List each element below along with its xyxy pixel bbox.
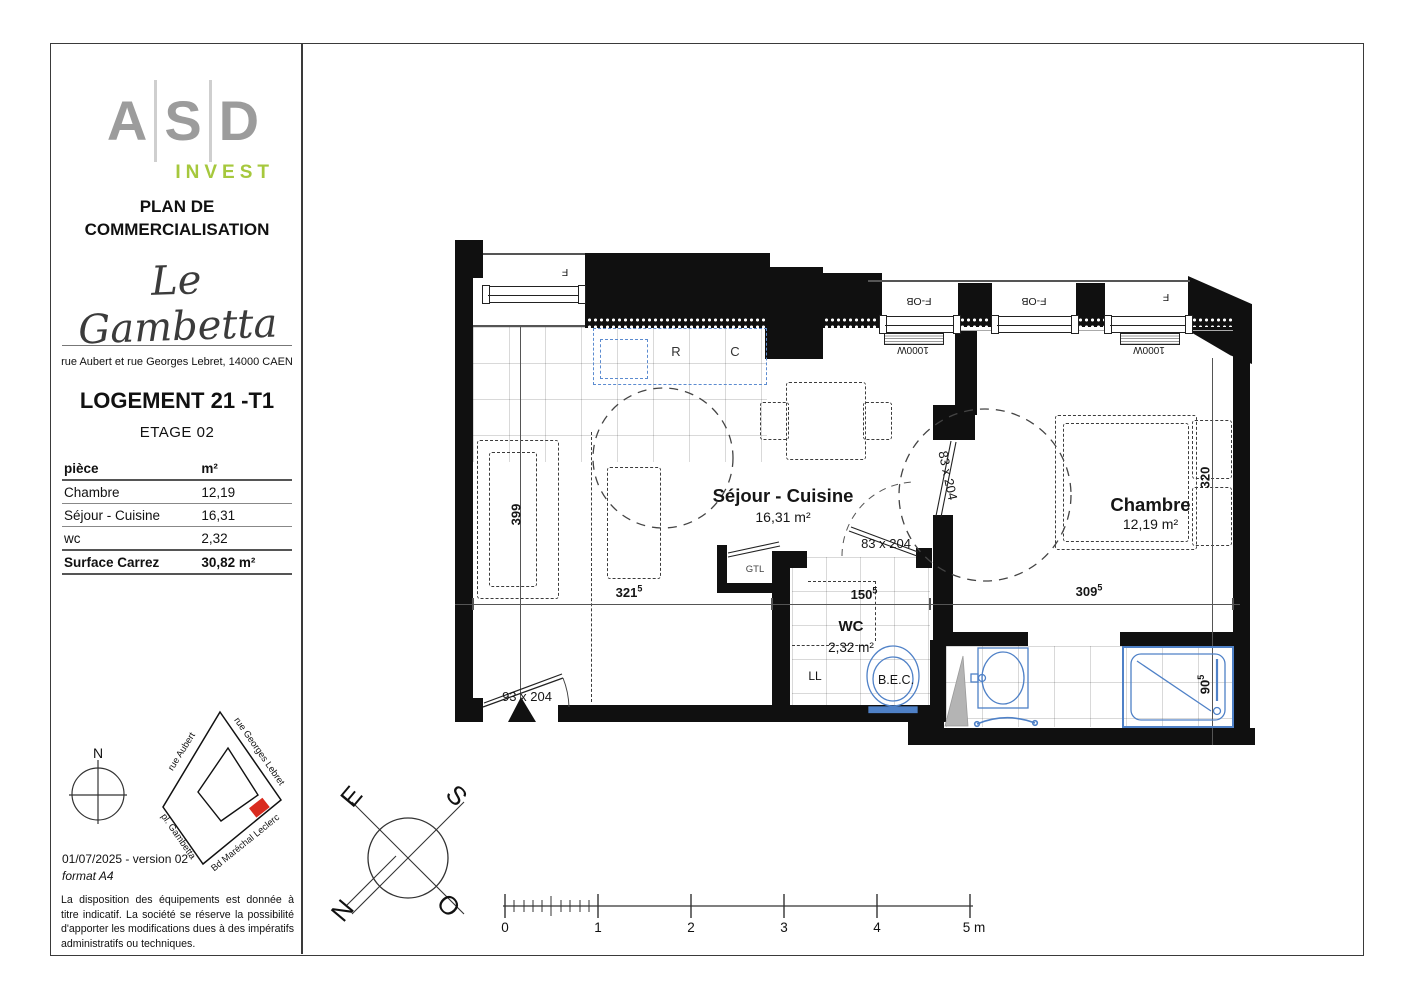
total-area: 30,82 m² bbox=[201, 555, 290, 570]
compass-north-double-line bbox=[347, 856, 396, 905]
washer-label: LL bbox=[800, 669, 830, 683]
map-inner-block bbox=[198, 748, 258, 821]
compass-e: E bbox=[334, 780, 368, 813]
logo-bar bbox=[154, 80, 157, 162]
table-row: wc 2,32 bbox=[62, 527, 292, 551]
street-aubert: rue Aubert bbox=[166, 730, 197, 772]
table-total-row: Surface Carrez 30,82 m² bbox=[62, 551, 292, 575]
window-label-f1: F bbox=[550, 266, 580, 278]
compass-n: N bbox=[325, 894, 360, 928]
row-piece: Séjour - Cuisine bbox=[64, 508, 201, 523]
floor-label: ETAGE 02 bbox=[58, 424, 296, 441]
unit-title: LOGEMENT 21 -T1 bbox=[58, 388, 296, 414]
scale-4: 4 bbox=[873, 920, 881, 935]
table-header: pièce m² bbox=[62, 457, 292, 481]
wc-door-label: 83 x 204 bbox=[851, 536, 921, 551]
fridge-letter: R bbox=[666, 344, 686, 359]
entrance-door-label: 93 x 204 bbox=[492, 689, 562, 704]
window-label-f2: F bbox=[1136, 291, 1196, 303]
logo-letter-d: D bbox=[219, 93, 259, 149]
dim-309: 3095 bbox=[1054, 584, 1124, 599]
window-label-fob1: F-OB bbox=[889, 295, 949, 307]
residence-name: Le Gambetta bbox=[59, 254, 294, 354]
scale-3: 3 bbox=[780, 920, 788, 935]
compass-and-scale: E S N O 0 1 2 3 4 5 m bbox=[310, 782, 1010, 947]
scale-1: 1 bbox=[594, 920, 602, 935]
logo-invest-label: INVEST bbox=[88, 162, 278, 184]
row-area: 2,32 bbox=[201, 531, 290, 546]
col-area: m² bbox=[201, 461, 290, 476]
shaft-triangle bbox=[945, 656, 968, 726]
unit-location-marker bbox=[249, 798, 270, 818]
street-lebret: rue Georges Lebret bbox=[232, 715, 287, 787]
radiator-label: 1000W bbox=[883, 344, 943, 355]
address: rue Aubert et rue Georges Lebret, 14000 … bbox=[58, 356, 296, 368]
scale-2: 2 bbox=[687, 920, 695, 935]
dim-150: 1505 bbox=[829, 587, 899, 602]
gtl-door-leaf bbox=[728, 542, 780, 557]
dim-321: 3215 bbox=[594, 585, 664, 600]
paper-format: format A4 bbox=[62, 869, 114, 883]
table-row: Chambre 12,19 bbox=[62, 481, 292, 504]
dim-90: 905 bbox=[1198, 665, 1213, 705]
row-piece: Chambre bbox=[64, 485, 201, 500]
sejour-name: Séjour - Cuisine bbox=[658, 485, 908, 507]
row-area: 16,31 bbox=[201, 508, 290, 523]
shower-tray bbox=[1123, 647, 1233, 727]
version-date: 01/07/2025 - version 02 bbox=[62, 852, 188, 866]
bathroom-sink bbox=[971, 648, 1028, 708]
north-letter: N bbox=[93, 745, 103, 761]
compass-o: O bbox=[431, 888, 467, 923]
dim-320: 320 bbox=[1198, 458, 1213, 498]
row-piece: wc bbox=[64, 531, 201, 546]
sidebar-rule bbox=[62, 345, 292, 346]
sejour-area: 16,31 m² bbox=[658, 509, 908, 525]
cooktop-letter: C bbox=[725, 344, 745, 359]
radiator-label: 1000W bbox=[1119, 344, 1179, 355]
col-piece: pièce bbox=[64, 461, 201, 476]
logo-letter-s: S bbox=[164, 93, 201, 149]
compass-s: S bbox=[440, 779, 474, 812]
document-title: PLAN DE COMMERCIALISATION bbox=[61, 196, 293, 242]
disclaimer-text: La disposition des équipements est donné… bbox=[61, 893, 294, 951]
clearance-circle-chambre bbox=[899, 409, 1071, 581]
wc-area: 2,32 m² bbox=[813, 640, 889, 655]
towel-bar bbox=[975, 718, 1038, 727]
window-label-fob2: F-OB bbox=[1004, 295, 1064, 307]
sidebar-divider bbox=[301, 43, 303, 954]
scale-0: 0 bbox=[501, 920, 509, 935]
logo-bar bbox=[209, 80, 212, 162]
table-row: Séjour - Cuisine 16,31 bbox=[62, 504, 292, 527]
logo-letters: A S D bbox=[88, 80, 278, 162]
row-area: 12,19 bbox=[201, 485, 290, 500]
area-table: pièce m² Chambre 12,19 Séjour - Cuisine … bbox=[62, 457, 292, 575]
logo-letter-a: A bbox=[107, 93, 147, 149]
wc-name: WC bbox=[813, 618, 889, 635]
total-label: Surface Carrez bbox=[64, 555, 201, 570]
chambre-area: 12,19 m² bbox=[1063, 516, 1238, 532]
clearance-circle-sejour bbox=[593, 388, 733, 528]
asd-invest-logo: A S D INVEST bbox=[88, 80, 278, 184]
dim-399: 399 bbox=[509, 495, 524, 535]
gtl-label: GTL bbox=[737, 564, 773, 575]
plan-sheet: A S D INVEST PLAN DE COMMERCIALISATION L… bbox=[0, 0, 1415, 1000]
scale-5m: 5 m bbox=[963, 920, 986, 935]
entrance-door-arc bbox=[563, 678, 569, 707]
bec-label: B.E.C. bbox=[870, 673, 922, 687]
street-leclerc: Bd Maréchal Leclerc bbox=[209, 812, 281, 873]
